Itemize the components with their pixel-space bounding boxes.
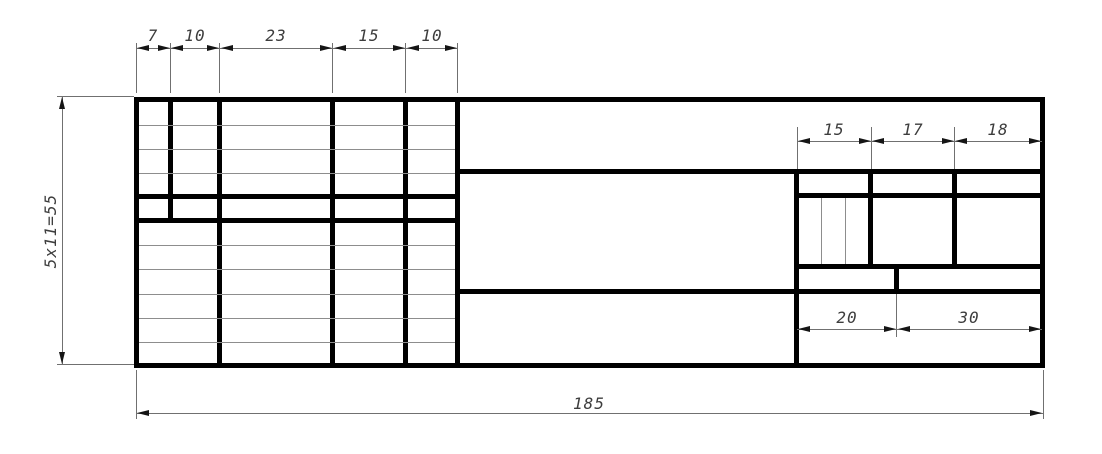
- subcell-line: [821, 198, 822, 264]
- dimension-arrow: [393, 45, 405, 51]
- row-line: [139, 269, 455, 270]
- extension-line: [797, 127, 798, 169]
- dimension-arrow: [171, 45, 183, 51]
- dim-label-right-15: 15: [823, 122, 844, 138]
- sheet-cell-divider: [894, 264, 899, 294]
- dimension-arrow: [859, 138, 871, 144]
- dimension-arrow: [884, 326, 896, 332]
- subcell-line: [845, 198, 846, 264]
- row-line: [139, 342, 455, 343]
- dimension-line-right-bottom: [797, 329, 1042, 330]
- right-header-bottom-line: [794, 193, 1045, 198]
- header-row-top-line: [134, 194, 460, 199]
- right-body-bottom-line: [794, 264, 1045, 269]
- row-line: [139, 125, 455, 126]
- row-line: [139, 245, 455, 246]
- left-block-right-edge: [455, 97, 460, 368]
- col-line-23: [330, 97, 335, 368]
- dimension-arrow: [158, 45, 170, 51]
- name-cell-bottom-line: [455, 289, 1045, 294]
- dimension-arrow: [334, 45, 346, 51]
- row-line: [139, 149, 455, 150]
- border-bottom: [134, 363, 1045, 368]
- dim-label-bottom-30: 30: [958, 310, 979, 326]
- dim-label-top-15: 15: [358, 28, 379, 44]
- dimension-arrow: [137, 45, 149, 51]
- dimension-arrow: [798, 326, 810, 332]
- dim-label-top-10a: 10: [184, 28, 205, 44]
- dimension-arrow: [872, 138, 884, 144]
- dimension-arrow: [320, 45, 332, 51]
- dim-label-right-18: 18: [987, 122, 1008, 138]
- dimension-arrow: [407, 45, 419, 51]
- dimension-line-left: [62, 96, 63, 364]
- title-block-drawing: 7 10 23 15 10 5x11=55 15 17 18 20 30 185: [0, 0, 1102, 454]
- dimension-arrow: [1030, 410, 1042, 416]
- right-col-line-17: [868, 169, 873, 269]
- dimension-line-bottom: [136, 413, 1043, 414]
- row-line: [139, 294, 455, 295]
- col-line-7: [168, 97, 173, 223]
- extension-line: [954, 127, 955, 169]
- dim-label-top-10b: 10: [421, 28, 442, 44]
- dimension-arrow: [137, 410, 149, 416]
- extension-line: [332, 43, 333, 93]
- extension-line: [57, 96, 134, 97]
- dim-label-left-height: 5x11=55: [43, 194, 59, 268]
- row-line: [139, 173, 455, 174]
- col-line-10: [217, 97, 222, 368]
- dimension-arrow: [221, 45, 233, 51]
- border-left: [134, 97, 139, 368]
- dimension-arrow: [1029, 138, 1041, 144]
- dimension-line-right-top: [797, 141, 1042, 142]
- dimension-arrow: [942, 138, 954, 144]
- dim-label-total-width: 185: [573, 396, 605, 412]
- extension-line: [405, 43, 406, 93]
- col-line-15: [403, 97, 408, 368]
- dimension-arrow: [898, 326, 910, 332]
- dim-label-top-23: 23: [265, 28, 286, 44]
- dim-label-top-7: 7: [148, 28, 159, 44]
- header-row-bottom-line: [134, 218, 460, 223]
- extension-line: [896, 294, 897, 337]
- right-col-line-18: [952, 169, 957, 269]
- extension-line: [57, 364, 134, 365]
- border-top: [134, 97, 1045, 102]
- dimension-arrow: [59, 97, 65, 109]
- row-line: [139, 318, 455, 319]
- dimension-arrow: [798, 138, 810, 144]
- dim-label-bottom-20: 20: [836, 310, 857, 326]
- extension-line: [1043, 370, 1044, 419]
- dimension-arrow: [207, 45, 219, 51]
- extension-line: [219, 43, 220, 93]
- dimension-arrow: [1029, 326, 1041, 332]
- dimension-arrow: [59, 352, 65, 364]
- dimension-arrow: [445, 45, 457, 51]
- dim-label-right-17: 17: [902, 122, 923, 138]
- extension-line: [871, 127, 872, 169]
- extension-line: [457, 43, 458, 93]
- dimension-arrow: [955, 138, 967, 144]
